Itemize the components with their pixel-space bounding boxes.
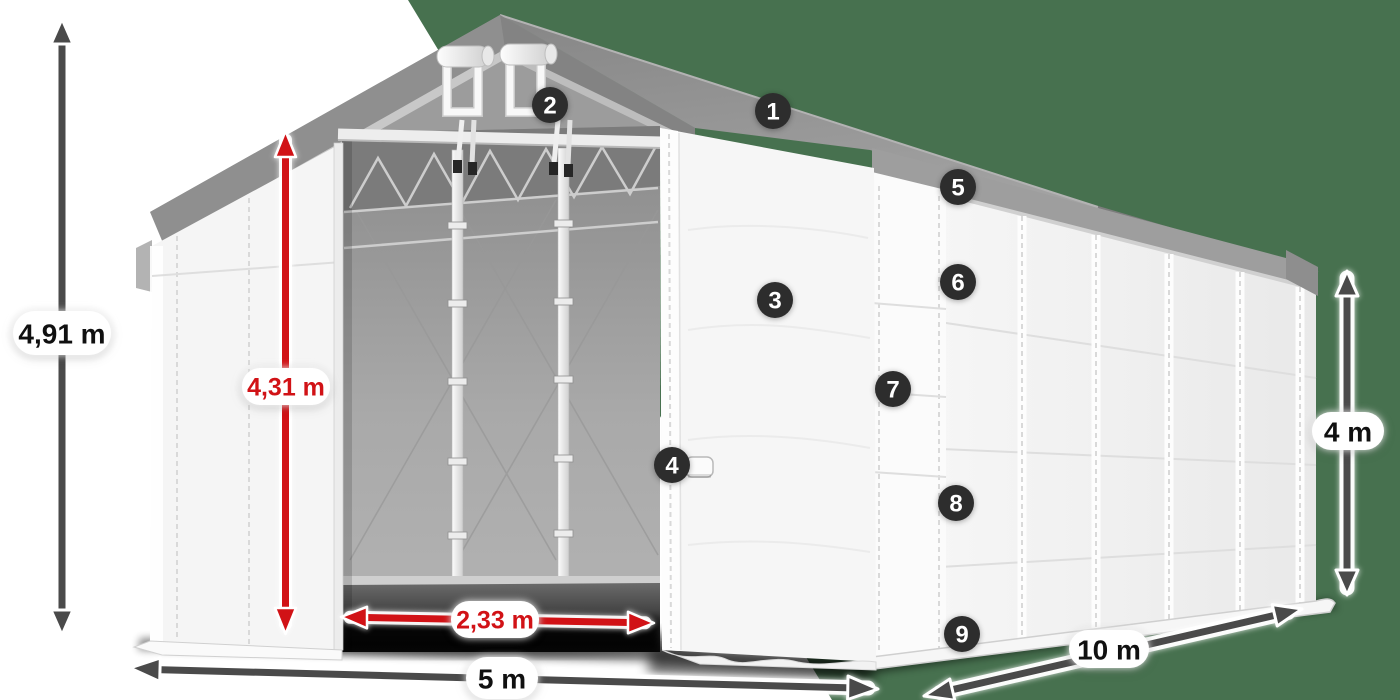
hotspot-marker-1[interactable]: 1 xyxy=(755,93,791,129)
jamb-shadow xyxy=(342,133,352,652)
door-handle[interactable] xyxy=(686,457,713,478)
label-width: 5 m xyxy=(466,657,538,699)
svg-text:2: 2 xyxy=(543,93,556,120)
svg-text:4: 4 xyxy=(665,453,679,480)
svg-text:1: 1 xyxy=(766,99,779,126)
corner-highlight xyxy=(150,246,163,642)
svg-text:2,33 m: 2,33 m xyxy=(456,607,534,635)
svg-text:10 m: 10 m xyxy=(1077,635,1141,666)
label-door-height: 4,31 m xyxy=(242,368,330,405)
svg-text:8: 8 xyxy=(949,491,962,518)
hotspot-marker-9[interactable]: 9 xyxy=(944,616,980,652)
svg-text:5 m: 5 m xyxy=(478,664,526,695)
door-panel xyxy=(660,128,876,662)
label-side-height: 4 m xyxy=(1312,412,1384,450)
hotspot-marker-3[interactable]: 3 xyxy=(757,282,793,318)
hotspot-marker-2[interactable]: 2 xyxy=(532,87,568,123)
door-jamb-rail xyxy=(334,143,343,650)
hotspot-marker-4[interactable]: 4 xyxy=(654,447,690,483)
tent-illustration: 4,91 m 4,31 m 2,33 m 5 m 10 m 4 m 1 2 3 … xyxy=(0,0,1400,700)
corner-pole-column xyxy=(872,172,946,660)
svg-text:3: 3 xyxy=(768,288,781,315)
svg-text:6: 6 xyxy=(951,270,964,297)
label-length: 10 m xyxy=(1069,630,1149,668)
tent-interior xyxy=(342,126,660,652)
label-total-height: 4,91 m xyxy=(13,311,111,355)
product-diagram: 4,91 m 4,31 m 2,33 m 5 m 10 m 4 m 1 2 3 … xyxy=(0,0,1400,700)
svg-text:4 m: 4 m xyxy=(1324,417,1372,448)
label-door-width: 2,33 m xyxy=(451,601,539,638)
hotspot-marker-5[interactable]: 5 xyxy=(940,169,976,205)
hotspot-marker-8[interactable]: 8 xyxy=(938,485,974,521)
svg-text:5: 5 xyxy=(951,175,964,202)
svg-text:4,91 m: 4,91 m xyxy=(18,319,105,350)
hotspot-marker-7[interactable]: 7 xyxy=(875,371,911,407)
svg-text:4,31 m: 4,31 m xyxy=(247,374,325,402)
svg-text:9: 9 xyxy=(955,622,968,649)
tent-open-door xyxy=(660,128,876,670)
svg-text:7: 7 xyxy=(886,377,899,404)
hotspot-marker-6[interactable]: 6 xyxy=(940,264,976,300)
eave-corner-cap xyxy=(136,240,152,292)
